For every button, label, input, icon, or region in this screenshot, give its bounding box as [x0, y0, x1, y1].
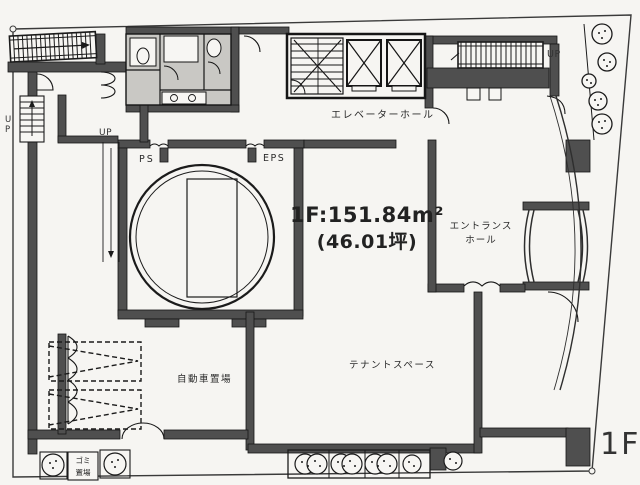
wall-niches [467, 88, 501, 100]
label-entrance-hall: エントランス ホール [442, 220, 520, 249]
label-up-top-right: UP [547, 49, 561, 60]
label-tenant-space: テナントスペース [349, 357, 436, 371]
stair-top-left [9, 32, 96, 62]
label-car-parking: 自動車置場 [177, 371, 232, 385]
label-garbage-area: ゴミ 置場 [69, 455, 97, 479]
floor-tag: 1F [600, 427, 640, 462]
entrance-vestibule [525, 210, 588, 282]
label-electric-pipe-shaft: EPS [263, 153, 285, 164]
elevator-shafts [347, 40, 421, 91]
label-up-top-left: UP [5, 115, 14, 135]
planter-top-right [582, 24, 616, 140]
ramp [103, 142, 119, 262]
label-pipe-shaft: PS [139, 154, 155, 165]
floor-area-tsubo: (46.01坪) [290, 227, 444, 254]
label-elevator-hall: エレベーターホール [331, 106, 435, 121]
stair-left [20, 96, 44, 142]
restrooms [126, 34, 231, 105]
label-up-mid-left: UP [99, 128, 112, 138]
car-turntable [130, 165, 274, 309]
stair-top-right [451, 42, 543, 68]
floor-area-value: 1F:151.84m² [290, 203, 444, 227]
label-floor-area: 1F:151.84m² (46.01坪) [290, 203, 444, 254]
floorplan-page: エレベーターホール 1F:151.84m² (46.01坪) エントランス ホー… [0, 0, 640, 485]
